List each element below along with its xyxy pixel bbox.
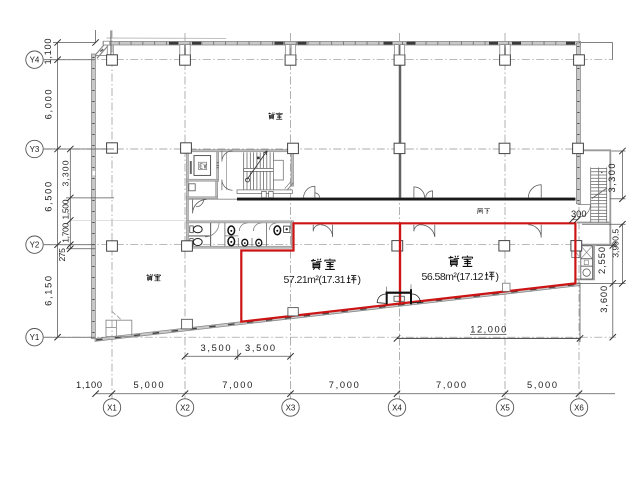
svg-text:7,000: 7,000	[329, 380, 359, 390]
svg-text:Y4: Y4	[30, 56, 40, 65]
svg-text:5,000: 5,000	[134, 380, 164, 390]
svg-text:1,500: 1,500	[61, 199, 71, 219]
svg-text:3,600: 3,600	[599, 286, 609, 313]
svg-text:2,550: 2,550	[597, 247, 607, 274]
svg-text:6,000: 6,000	[44, 89, 54, 119]
svg-text:7,000: 7,000	[436, 380, 466, 390]
svg-text:57.21m²(17.31: 57.21m²(17.31	[284, 274, 346, 286]
svg-text:3,500: 3,500	[245, 343, 275, 353]
svg-text:X4: X4	[392, 403, 402, 412]
svg-text:Y2: Y2	[30, 241, 40, 250]
svg-text:3,500: 3,500	[201, 343, 231, 353]
svg-text:1,700: 1,700	[61, 223, 71, 243]
svg-text:300: 300	[571, 209, 587, 219]
svg-text:6,500: 6,500	[44, 182, 54, 212]
svg-text:X5: X5	[500, 403, 510, 412]
svg-text:): )	[496, 271, 500, 283]
svg-text:Y1: Y1	[30, 333, 40, 342]
svg-text:X2: X2	[180, 403, 190, 412]
svg-text:X1: X1	[107, 403, 117, 412]
svg-text:6,150: 6,150	[44, 276, 54, 306]
svg-text:X3: X3	[286, 403, 296, 412]
svg-text:3,300: 3,300	[61, 160, 71, 186]
svg-text:275: 275	[57, 248, 67, 262]
svg-text:7,000: 7,000	[222, 380, 252, 390]
svg-text:5,000: 5,000	[527, 380, 557, 390]
svg-text:Y3: Y3	[30, 145, 40, 154]
svg-text:3,300: 3,300	[607, 164, 617, 193]
svg-text:56.58m²(17.12: 56.58m²(17.12	[422, 271, 484, 283]
svg-text:1,100: 1,100	[43, 39, 53, 65]
svg-text:1,100: 1,100	[76, 380, 102, 390]
svg-text:): )	[358, 274, 362, 286]
svg-text:3,990.5: 3,990.5	[610, 229, 620, 258]
svg-text:X6: X6	[574, 403, 584, 412]
